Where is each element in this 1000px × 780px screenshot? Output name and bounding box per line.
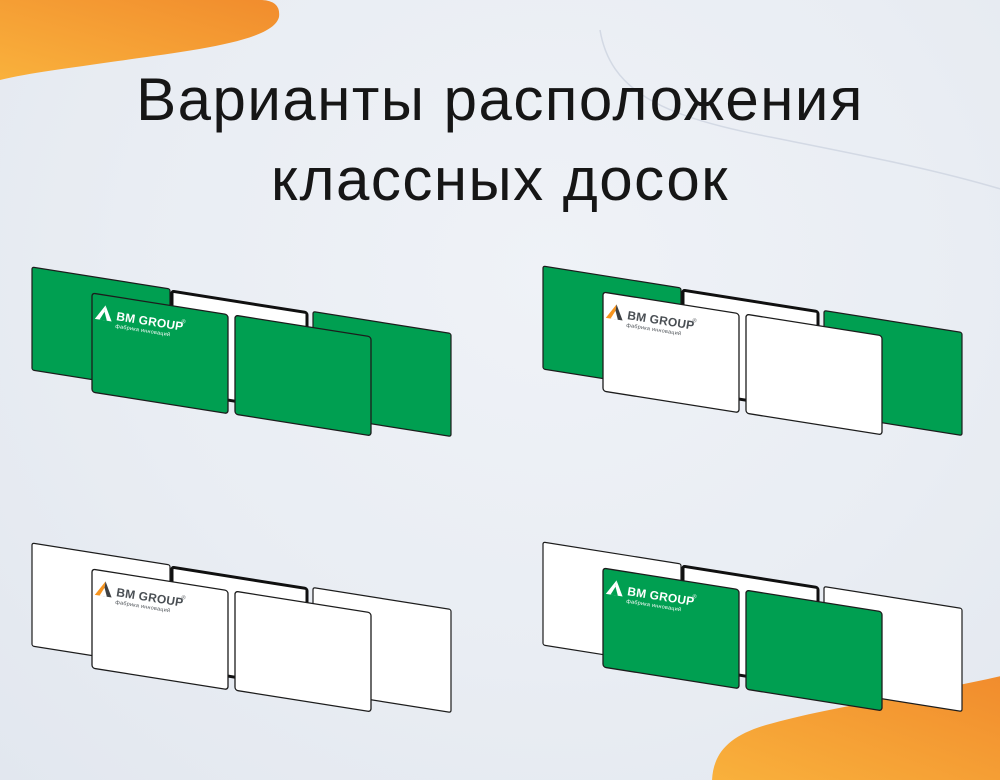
right-door-panel	[235, 315, 371, 436]
right-door-panel	[746, 590, 882, 711]
left-door-panel	[603, 568, 739, 689]
right-door-panel	[746, 314, 882, 435]
board-variant-bottom-right: BM GROUP ® фабрика инноваций	[511, 530, 981, 730]
left-door-panel	[92, 293, 228, 414]
poster-canvas: Варианты расположения классных досок BM …	[0, 0, 1000, 780]
board-diagram: BM GROUP ® фабрика инноваций	[511, 254, 981, 454]
board-diagram: BM GROUP ® фабрика инноваций	[511, 530, 981, 730]
left-door-panel	[603, 292, 739, 413]
board-variant-top-left: BM GROUP ® фабрика инноваций	[0, 255, 470, 455]
right-door-panel	[235, 591, 371, 712]
board-diagram: BM GROUP ® фабрика инноваций	[0, 531, 470, 731]
left-door-panel	[92, 569, 228, 690]
page-title: Варианты расположения классных досок	[0, 60, 1000, 220]
board-diagram: BM GROUP ® фабрика инноваций	[0, 255, 470, 455]
board-variant-top-right: BM GROUP ® фабрика инноваций	[511, 254, 981, 454]
title-line-1: Варианты расположения	[0, 60, 1000, 140]
board-variant-bottom-left: BM GROUP ® фабрика инноваций	[0, 531, 470, 731]
title-line-2: классных досок	[0, 140, 1000, 220]
